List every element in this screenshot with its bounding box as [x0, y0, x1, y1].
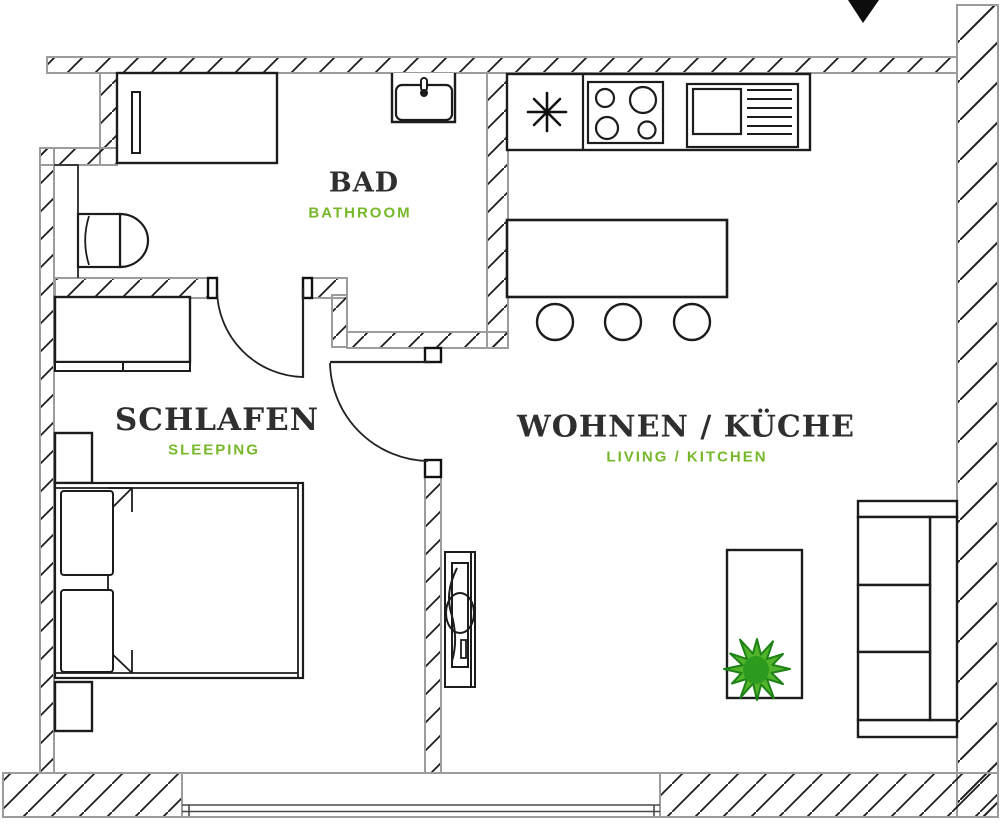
stove — [588, 82, 663, 143]
bedroom-label: SCHLAFEN — [115, 402, 319, 438]
sofa-cushion — [858, 517, 930, 585]
wall-right — [957, 5, 998, 817]
bar-stool — [537, 304, 573, 340]
kitchen-island — [507, 220, 727, 340]
bathroom-sink — [392, 73, 455, 122]
bathroom-door — [208, 278, 312, 378]
window-bottom — [182, 773, 660, 817]
sofa-armrest — [858, 720, 957, 737]
door-post — [425, 348, 441, 362]
burner — [639, 122, 656, 139]
wall-top — [47, 57, 957, 73]
door-swing-arc — [217, 290, 303, 377]
wall-bath-bottom-left — [55, 278, 208, 298]
door-post — [425, 460, 441, 477]
wall-bottom-left — [3, 773, 182, 817]
sofa — [858, 501, 957, 737]
sofa-backrest — [930, 517, 957, 720]
kitchen-sink-icon — [528, 93, 566, 131]
wardrobe — [55, 297, 190, 371]
bedroom-door — [330, 348, 441, 477]
sofa-cushion — [858, 585, 930, 652]
toilet — [78, 214, 148, 267]
wall-left — [40, 148, 54, 773]
plumbing-wall-strip — [54, 165, 78, 278]
dishwasher — [687, 84, 798, 147]
burner — [630, 87, 656, 113]
door-post — [303, 278, 312, 298]
bathroom-sublabel: BATHROOM — [308, 205, 411, 222]
door-post — [208, 278, 217, 298]
bar-stool — [674, 304, 710, 340]
door-swing-arc — [330, 363, 428, 461]
sofa-cushion — [858, 652, 930, 720]
faucet-icon — [420, 78, 428, 97]
living-kitchen-label: WOHNEN / KÜCHE — [517, 410, 855, 445]
entrance-arrow-icon — [848, 0, 879, 23]
living-kitchen-sublabel: LIVING / KITCHEN — [606, 449, 767, 466]
double-bed — [55, 483, 303, 678]
nightstand — [55, 682, 92, 731]
wall-bath-bottom-right — [347, 332, 508, 348]
nightstand — [55, 433, 92, 483]
wall-mounted-tv — [445, 552, 475, 687]
wall-bath-step-down — [332, 295, 347, 347]
sofa-armrest — [858, 501, 957, 517]
wall-bedroom-divider — [425, 477, 441, 773]
apartment-floorplan: BAD BATHROOM SCHLAFEN SLEEPING WOHNEN / … — [0, 0, 1000, 825]
pillow — [61, 491, 113, 575]
bathroom-label: BAD — [329, 168, 399, 199]
kitchen-counter — [507, 74, 810, 150]
pillow — [61, 590, 113, 672]
wall-bath-right — [487, 73, 508, 348]
bar-stool — [605, 304, 641, 340]
wall-bottom-right — [660, 773, 998, 817]
burner — [596, 89, 614, 107]
bathtub — [117, 73, 277, 163]
bedroom-sublabel: SLEEPING — [168, 442, 260, 459]
burner — [596, 117, 618, 139]
